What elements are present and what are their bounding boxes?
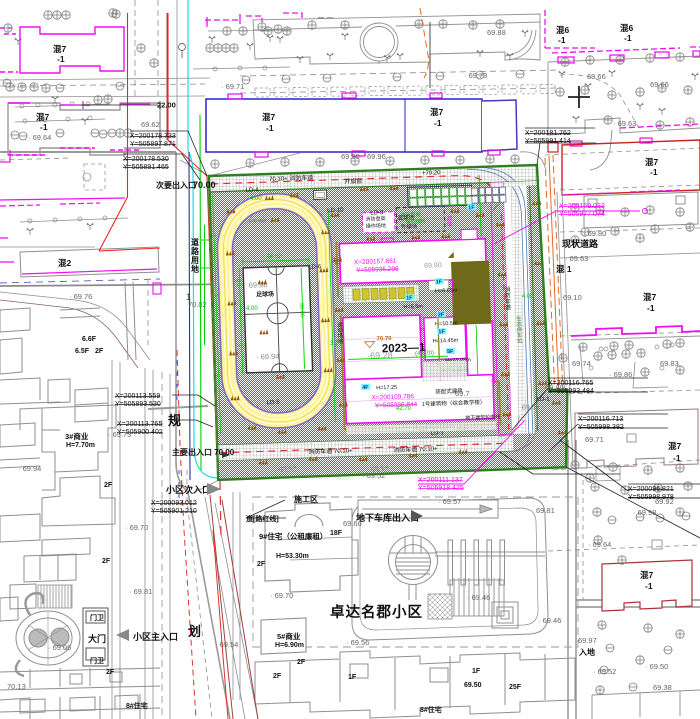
svg-text:· 69.76: · 69.76 [69, 292, 92, 301]
svg-text:X=200159.012: X=200159.012 [559, 203, 605, 210]
svg-text:-1: -1 [650, 167, 658, 177]
svg-text:69.66: 69.66 [650, 80, 669, 89]
svg-text:69.92: 69.92 [655, 497, 674, 506]
svg-text:(42.70): (42.70) [415, 351, 434, 358]
svg-text:· 69.52: · 69.52 [593, 667, 616, 676]
svg-text:18F: 18F [330, 530, 343, 537]
svg-text:·69.99: ·69.99 [246, 217, 266, 225]
svg-text:5#商业: 5#商业 [277, 631, 301, 641]
svg-text:混7: 混7 [645, 157, 659, 167]
svg-text:H=17.25: H=17.25 [376, 385, 397, 392]
svg-text:-1: -1 [266, 123, 274, 133]
svg-text:9#住宅（公租廉租）: 9#住宅（公租廉租） [259, 531, 327, 541]
svg-text:混7: 混7 [430, 107, 444, 117]
svg-text:Y=505897.871: Y=505897.871 [130, 141, 176, 148]
svg-text:X=200157.661: X=200157.661 [354, 258, 397, 266]
svg-text:1F: 1F [438, 329, 445, 335]
svg-text:· 69.52: · 69.52 [362, 471, 385, 480]
svg-text:混7: 混7 [643, 292, 657, 302]
svg-text:· 69.80: · 69.80 [583, 229, 606, 238]
svg-text:门卫: 门卫 [90, 656, 104, 665]
svg-text:LD-1: LD-1 [537, 397, 551, 403]
svg-text:H=53.30m: H=53.30m [276, 553, 309, 560]
svg-text:69.71: 69.71 [585, 435, 604, 444]
svg-text:小区主入口: 小区主入口 [132, 631, 178, 642]
svg-text:16.00: 16.00 [267, 254, 283, 261]
svg-text:X=200113.765: X=200113.765 [117, 421, 162, 428]
svg-text:2F: 2F [106, 669, 115, 676]
svg-text:H=7.70m: H=7.70m [66, 442, 95, 449]
svg-text:LD-6: LD-6 [308, 264, 322, 270]
svg-text:混7: 混7 [36, 112, 50, 122]
svg-text:69.38: 69.38 [653, 683, 672, 692]
svg-text:道路用地: 道路用地 [190, 237, 200, 274]
svg-text:地下建筑轮廓线: 地下建筑轮廓线 [465, 413, 500, 421]
svg-text:Y=505901.210: Y=505901.210 [151, 508, 197, 515]
svg-text:· 69.73: · 69.73 [464, 71, 487, 80]
svg-text:69.90: 69.90 [424, 262, 442, 270]
svg-text:2F: 2F [104, 482, 113, 489]
svg-text:6.6F: 6.6F [82, 336, 97, 343]
svg-text:69.50: 69.50 [464, 682, 482, 689]
svg-text:门卫: 门卫 [90, 613, 104, 622]
svg-text:X=200178.733: X=200178.733 [130, 133, 176, 140]
svg-text:2F: 2F [102, 558, 111, 565]
svg-text:小区次入口: 小区次入口 [165, 484, 211, 495]
svg-text:69.97: 69.97 [578, 636, 597, 645]
svg-text:· 69.81: · 69.81 [129, 587, 152, 596]
svg-text:· 69.50: · 69.50 [645, 662, 668, 671]
svg-text:69.7: 69.7 [455, 389, 470, 398]
svg-text:H=6.65m: H=6.65m [435, 288, 458, 295]
svg-text:混7: 混7 [53, 44, 67, 54]
svg-text:4.00: 4.00 [522, 294, 534, 300]
svg-text:X=200109.786: X=200109.786 [371, 393, 414, 401]
svg-text:· 69.06: · 69.06 [48, 643, 71, 652]
svg-text:69.88: 69.88 [487, 28, 506, 37]
svg-text:· 69.70: · 69.70 [270, 591, 293, 600]
svg-text:4.00: 4.00 [246, 306, 258, 312]
svg-text:· 69.94: · 69.94 [256, 352, 280, 362]
svg-text:· 69.73: · 69.73 [108, 430, 131, 439]
svg-text:· 69.64: · 69.64 [588, 540, 611, 549]
svg-text:2F: 2F [95, 348, 104, 355]
svg-text:H=14.45m: H=14.45m [433, 338, 459, 345]
svg-text:混7: 混7 [640, 570, 654, 580]
svg-text:X=200093.012: X=200093.012 [151, 500, 197, 507]
svg-text:3#商业: 3#商业 [65, 431, 89, 441]
svg-text:39.00: 39.00 [298, 303, 304, 317]
svg-text:2F: 2F [257, 561, 266, 568]
svg-text:道[路红线]: 道[路红线] [246, 514, 279, 523]
svg-text:Y=505893.530: Y=505893.530 [115, 401, 161, 408]
svg-text:-1: -1 [647, 303, 655, 313]
svg-text:X=200178.530: X=200178.530 [123, 156, 169, 163]
svg-text:卓达名郡小区: 卓达名郡小区 [330, 603, 423, 621]
svg-text:69.10: 69.10 [563, 293, 582, 302]
svg-text:· 69.71: · 69.71 [221, 82, 244, 91]
svg-text:规: 规 [168, 413, 181, 428]
svg-text:69.52: 69.52 [279, 466, 297, 474]
svg-text:5F: 5F [447, 349, 454, 355]
svg-text:· 69.70: · 69.70 [125, 523, 148, 532]
svg-text:Y=505935.296: Y=505935.296 [356, 266, 399, 274]
svg-text:X=200096.821: X=200096.821 [628, 486, 674, 493]
svg-text:1: 1 [186, 292, 191, 302]
svg-text:22.00: 22.00 [157, 101, 176, 110]
svg-text:· 69.86: · 69.86 [609, 370, 632, 379]
svg-text:-1: -1 [673, 453, 681, 463]
svg-text:1F: 1F [468, 205, 475, 211]
svg-text:· 69.98: · 69.98 [633, 508, 656, 517]
svg-text:混7: 混7 [668, 441, 682, 451]
svg-text:3.70: 3.70 [330, 341, 342, 347]
svg-text:6.5F: 6.5F [75, 348, 90, 355]
svg-text:69.83: 69.83 [660, 359, 679, 368]
svg-text:· 69.56: · 69.56 [346, 638, 369, 647]
svg-text:混6: 混6 [620, 23, 634, 33]
svg-text:X=200113.559: X=200113.559 [115, 393, 160, 400]
svg-text:69.74: 69.74 [572, 359, 591, 368]
svg-text:69.80: 69.80 [545, 383, 564, 392]
svg-text:L41: L41 [232, 278, 241, 284]
svg-text:1F: 1F [436, 279, 443, 285]
svg-text:Y=505891.465: Y=505891.465 [123, 164, 169, 171]
svg-text:1F: 1F [348, 674, 357, 681]
svg-text:69.62: 69.62 [141, 120, 160, 129]
svg-text:混 1: 混 1 [556, 264, 572, 274]
svg-text:X=200116.713: X=200116.713 [578, 416, 623, 423]
svg-text:42.70: 42.70 [396, 406, 412, 412]
svg-text:Y=505991.414: Y=505991.414 [525, 138, 571, 145]
svg-text:施工区: 施工区 [294, 494, 318, 504]
svg-text:69.96: 69.96 [367, 152, 386, 161]
svg-text:X=200111.137: X=200111.137 [418, 477, 463, 484]
svg-text:Y=505998.382: Y=505998.382 [578, 424, 624, 431]
svg-text:入地: 入地 [578, 647, 595, 657]
svg-text:8#住宅: 8#住宅 [126, 701, 148, 710]
svg-text:· 69.64: · 69.64 [28, 133, 51, 142]
svg-text:· 69.54: · 69.54 [215, 640, 238, 649]
svg-text:25F: 25F [509, 684, 522, 691]
svg-text:+70.20: +70.20 [422, 170, 441, 177]
svg-text:-1: -1 [624, 33, 632, 43]
svg-text:LD-4: LD-4 [245, 187, 259, 193]
svg-text:混6: 混6 [556, 25, 570, 35]
svg-text:H=6.90m: H=6.90m [275, 642, 304, 649]
svg-text:Y=505977.074: Y=505977.074 [559, 211, 605, 218]
svg-text:-1: -1 [645, 581, 653, 591]
svg-text:混2: 混2 [58, 258, 72, 268]
svg-text:-1: -1 [57, 54, 65, 64]
svg-text:4F: 4F [362, 385, 369, 391]
svg-text:69.81: 69.81 [536, 506, 555, 515]
svg-text:69.90·: 69.90· [341, 152, 362, 161]
svg-text:· 69.94: · 69.94 [18, 464, 41, 473]
svg-text:混7: 混7 [262, 112, 276, 122]
svg-text:70.13: 70.13 [7, 682, 26, 691]
svg-text:LD-8: LD-8 [370, 210, 384, 216]
svg-text:X=200181.762: X=200181.762 [525, 130, 571, 137]
svg-text:· 69.63: · 69.63 [613, 119, 636, 128]
svg-text:划: 划 [188, 624, 201, 639]
svg-text:现状道路: 现状道路 [562, 238, 599, 249]
svg-text:-1: -1 [40, 122, 48, 132]
svg-text:· 69.57: · 69.57 [438, 497, 461, 506]
svg-text:-1: -1 [558, 35, 566, 45]
svg-text:8#住宅: 8#住宅 [420, 705, 442, 714]
svg-text:2F: 2F [438, 312, 445, 318]
svg-text:H=6.6m: H=6.6m [403, 304, 423, 311]
svg-text:1F: 1F [406, 295, 413, 301]
svg-text:-1: -1 [434, 118, 442, 128]
svg-text:69.66: 69.66 [587, 72, 606, 81]
svg-text:· 69.46: · 69.46 [467, 593, 490, 602]
svg-text:1F: 1F [472, 668, 481, 675]
svg-text:次要出入口: 次要出入口 [156, 180, 196, 190]
svg-text:操作场地: 操作场地 [366, 222, 386, 230]
svg-text:· 69.63: · 69.63 [565, 254, 588, 263]
svg-text:大门: 大门 [88, 633, 106, 644]
svg-text:地下车库出入口: 地下车库出入口 [356, 512, 419, 523]
svg-text:4.00: 4.00 [250, 196, 262, 202]
svg-text:· 69.46: · 69.46 [538, 616, 561, 625]
svg-text:2F: 2F [273, 673, 282, 680]
svg-text:70.00: 70.00 [193, 180, 216, 190]
svg-text:LD-10: LD-10 [327, 207, 344, 214]
svg-text:Y=505918.425: Y=505918.425 [418, 485, 464, 492]
svg-text:LD-5: LD-5 [267, 400, 281, 406]
svg-text:70.70: 70.70 [376, 336, 392, 343]
svg-text:2F: 2F [297, 659, 306, 666]
